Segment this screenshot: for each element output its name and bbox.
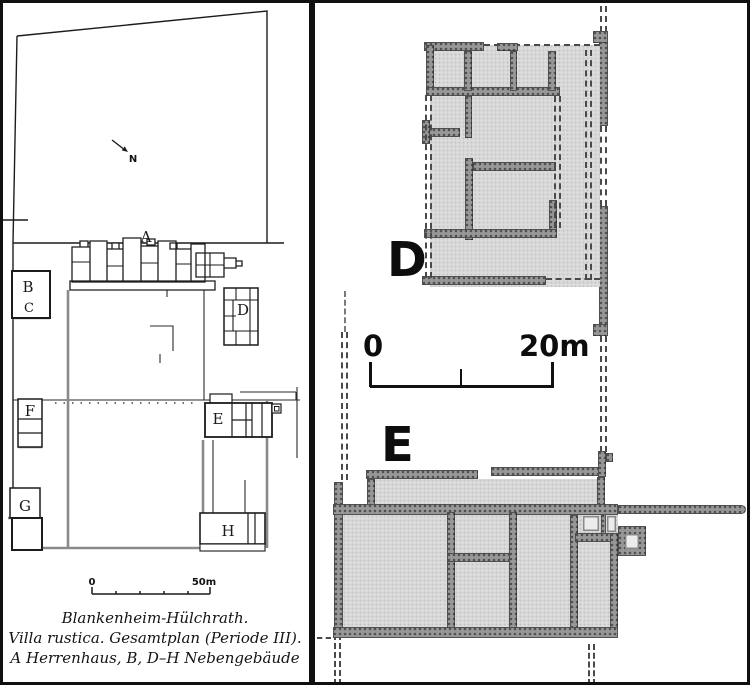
detail-label-d: D bbox=[387, 236, 427, 284]
label-e: E bbox=[213, 410, 224, 428]
detail-scale-line bbox=[370, 385, 554, 388]
scale-bar-50m: 0 50m bbox=[89, 577, 217, 594]
d-room-wall-2 bbox=[510, 51, 517, 91]
e-small-room-divider bbox=[601, 514, 606, 534]
building-d-overview: D bbox=[224, 288, 258, 345]
fence-dash-east-top bbox=[600, 6, 607, 32]
e-small-room-1 bbox=[583, 516, 599, 531]
building-e-appendage-inner bbox=[275, 407, 280, 412]
fence-dash-west-top bbox=[344, 291, 346, 332]
d-room-wall-3 bbox=[548, 51, 556, 91]
panel-divider bbox=[309, 0, 315, 685]
site-plan: N A B C D E bbox=[0, 0, 310, 685]
detail-scale-tick-mid bbox=[460, 369, 462, 387]
building-h-band bbox=[200, 544, 265, 551]
e-front-wall-2 bbox=[491, 467, 602, 476]
north-label: N bbox=[129, 154, 137, 165]
building-f: F bbox=[18, 399, 42, 447]
d-mid-wall bbox=[473, 162, 556, 171]
caption-line-2: Villa rustica. Gesamtplan (Periode III). bbox=[2, 628, 308, 648]
north-arrow-line bbox=[112, 140, 123, 149]
e-small-room-2 bbox=[607, 516, 616, 532]
north-arrow-head bbox=[122, 146, 128, 152]
caption-line-1: Blankenheim-Hülchrath. bbox=[2, 608, 308, 628]
d-long-wall bbox=[465, 158, 473, 240]
d-right-dashed-edge bbox=[585, 50, 592, 280]
e-wall-v1 bbox=[447, 512, 455, 630]
e-porticus-floor bbox=[375, 479, 598, 507]
label-g: G bbox=[19, 497, 31, 515]
scale-bar-line bbox=[92, 587, 210, 594]
d-bigroom-bottom-wall bbox=[424, 229, 557, 238]
building-g: G bbox=[10, 488, 42, 550]
building-h: H bbox=[200, 513, 265, 551]
detail-label-e: E bbox=[381, 421, 414, 469]
detail-scale-tick-right bbox=[551, 362, 554, 387]
e-south-dash bbox=[588, 644, 595, 685]
d-room-wall-1 bbox=[464, 51, 472, 91]
d-left-wall-top bbox=[426, 45, 434, 93]
building-g-annex bbox=[12, 518, 42, 550]
figure-scan: N A B C D E bbox=[0, 0, 750, 685]
building-a-rooms bbox=[70, 238, 242, 290]
d-bottom-wall bbox=[422, 276, 546, 285]
detail-scale-zero: 0 bbox=[363, 332, 383, 361]
fence-wall-east-upper bbox=[599, 31, 608, 126]
e-wall-mid-h bbox=[447, 553, 517, 562]
e-main-band-wall bbox=[333, 504, 618, 515]
d-top-wall-chunk bbox=[497, 43, 518, 51]
e-appendage-room bbox=[625, 534, 639, 549]
label-a: A bbox=[140, 228, 152, 246]
figure-caption: Blankenheim-Hülchrath. Villa rustica. Ge… bbox=[2, 608, 308, 668]
building-b: B C bbox=[12, 271, 50, 318]
e-ne-corner-wall bbox=[598, 451, 606, 477]
scale-zero: 0 bbox=[89, 577, 96, 588]
d-inner-dashed bbox=[554, 96, 561, 228]
fence-dash-east-mid bbox=[600, 126, 607, 206]
e-long-east-wall bbox=[618, 505, 746, 514]
fence-dash-west bbox=[341, 332, 348, 480]
label-d: D bbox=[237, 301, 249, 319]
fence-dash-west-bottom bbox=[334, 634, 341, 685]
e-right-wall bbox=[610, 533, 618, 638]
fence-wall-east-lower bbox=[599, 206, 608, 336]
caption-line-3: A Herrenhaus, B, D–H Nebengebäude bbox=[2, 648, 308, 668]
label-b: B bbox=[22, 278, 33, 296]
building-a: A bbox=[70, 228, 242, 290]
detail-scale-tick-left bbox=[369, 362, 372, 387]
north-arrow: N bbox=[112, 140, 137, 165]
e-bottom-wall bbox=[333, 627, 618, 638]
fence-wall-east-bump-top bbox=[593, 31, 608, 43]
e-ne-corner-flag bbox=[606, 453, 613, 462]
label-f: F bbox=[25, 402, 35, 420]
fence-wall-east-bump-bottom bbox=[593, 324, 608, 336]
label-h: H bbox=[221, 522, 234, 540]
fence-dash-corner-mark bbox=[317, 637, 331, 639]
d-small-room-wall bbox=[465, 96, 472, 138]
e-front-wall-1 bbox=[366, 470, 478, 479]
scale-end: 50m bbox=[192, 577, 216, 588]
fence-dash-east-bottom bbox=[600, 336, 607, 452]
d-cross-band bbox=[426, 87, 560, 96]
e-wall-v2 bbox=[509, 512, 517, 632]
label-c: C bbox=[24, 301, 34, 316]
detail-scale-end: 20m bbox=[519, 332, 590, 361]
detail-panel: D 0 20m E bbox=[316, 0, 750, 685]
